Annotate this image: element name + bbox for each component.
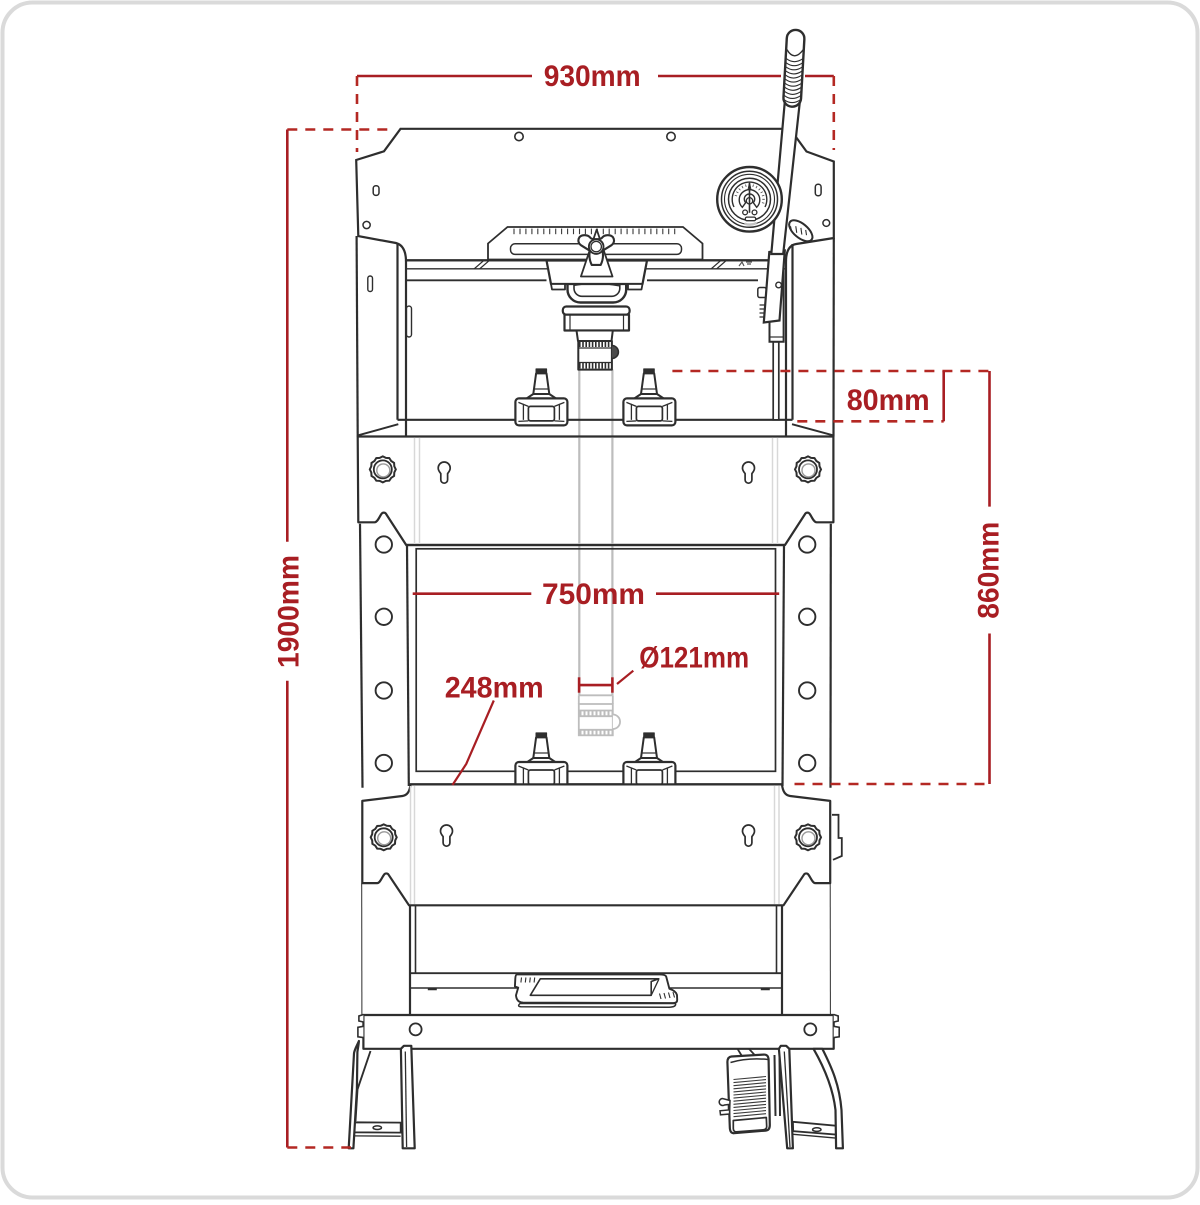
svg-text:750mm: 750mm [542,578,645,611]
svg-text:1900mm: 1900mm [273,555,306,668]
svg-text:Ø121mm: Ø121mm [639,642,749,675]
svg-text:80mm: 80mm [847,384,930,417]
svg-text:930mm: 930mm [544,60,641,93]
svg-text:860mm: 860mm [973,522,1006,619]
svg-text:248mm: 248mm [445,672,544,705]
